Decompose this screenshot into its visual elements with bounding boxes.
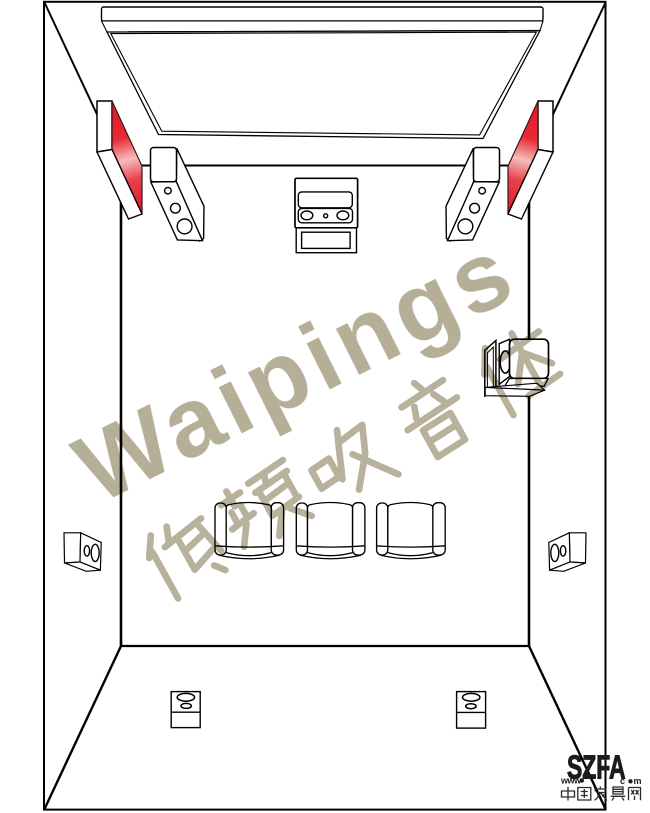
svg-text:c: c xyxy=(620,776,625,786)
svg-text:www: www xyxy=(560,776,582,786)
svg-text:m: m xyxy=(634,776,642,786)
svg-text:Waipings: Waipings xyxy=(59,214,533,524)
